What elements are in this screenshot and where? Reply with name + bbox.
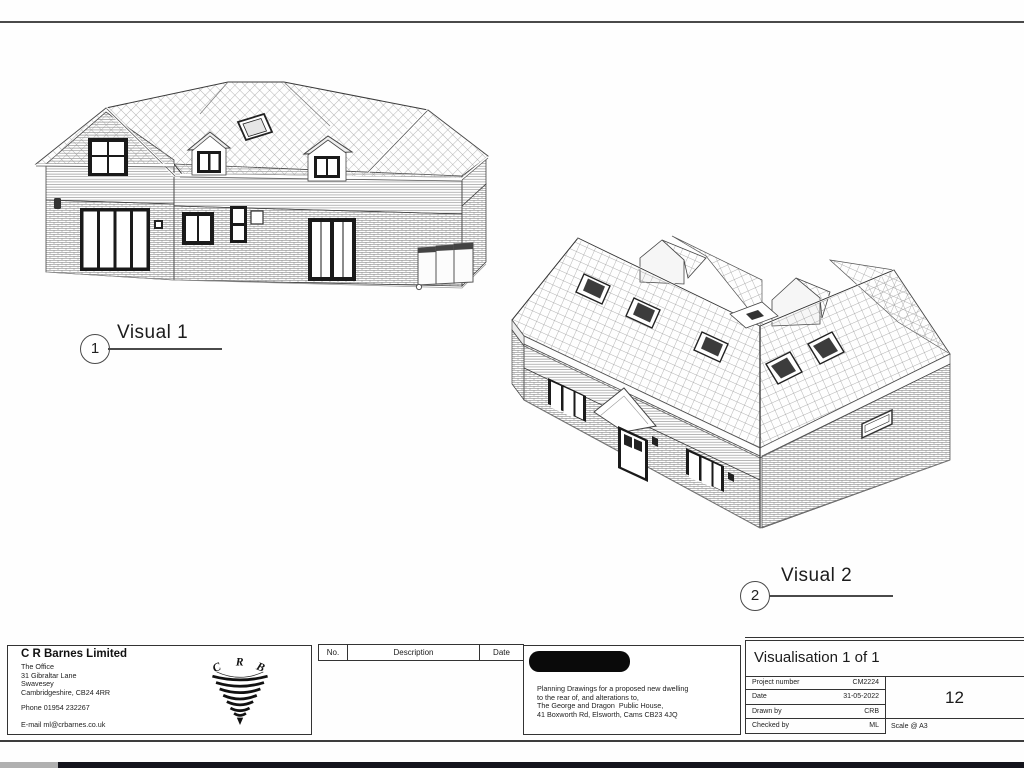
figure-1-number: 1 xyxy=(91,340,99,357)
svg-text:B: B xyxy=(254,659,267,674)
house1-wheelie-bins xyxy=(416,243,473,290)
figure-1-leader-line xyxy=(108,348,222,350)
field-value: CRB xyxy=(864,708,879,715)
company-address-line-4: Cambridgeshire, CB24 4RR xyxy=(21,688,110,697)
svg-text:C: C xyxy=(211,660,223,675)
field-value: 31-05-2022 xyxy=(843,693,879,700)
redacted-text-bar xyxy=(529,651,630,672)
revision-col-description: Description xyxy=(347,644,480,661)
sheet-title: Visualisation 1 of 1 xyxy=(754,649,880,666)
drawing-sheet: 1 Visual 1 xyxy=(0,0,1024,768)
project-box: Planning Drawings for a proposed new dwe… xyxy=(523,645,741,735)
sheet-title-box: Visualisation 1 of 1 xyxy=(745,640,1024,677)
company-box: C R Barnes Limited The Office 31 Gibralt… xyxy=(7,645,312,735)
revision-col-date: Date xyxy=(479,644,524,661)
field-row-project-number: Project number CM2224 xyxy=(746,676,886,690)
house1-bifold-doors xyxy=(80,208,150,271)
figure-2-title: Visual 2 xyxy=(781,565,852,587)
company-phone: Phone 01954 232267 xyxy=(21,703,90,712)
crb-logo-icon: C R B xyxy=(208,655,272,725)
sheet-scale: Scale @ A3 xyxy=(885,719,1024,734)
svg-text:R: R xyxy=(235,656,244,669)
figure-2-number-bubble: 2 xyxy=(740,581,770,611)
field-value: CM2224 xyxy=(853,679,879,686)
visual-2-drawing xyxy=(500,226,982,538)
house1-french-doors xyxy=(308,218,356,281)
project-description-line-4: 41 Boxworth Rd, Elsworth, Cams CB23 4JQ xyxy=(537,710,678,719)
field-row-checked-by: Checked by ML xyxy=(746,719,886,733)
house1-gable-window xyxy=(88,138,128,176)
sheet-number: 12 xyxy=(885,676,1024,719)
figure-1-number-bubble: 1 xyxy=(80,334,110,364)
field-label: Project number xyxy=(752,679,799,686)
field-label: Checked by xyxy=(752,722,789,729)
figure-2-number: 2 xyxy=(751,587,759,604)
page-edge-left xyxy=(0,762,58,768)
figure-2-leader-line xyxy=(769,595,893,597)
sheet-top-border xyxy=(0,21,1024,23)
company-name: C R Barnes Limited xyxy=(21,648,127,660)
sheet-block-top-line xyxy=(745,637,1024,638)
field-label: Drawn by xyxy=(752,708,782,715)
field-row-date: Date 31-05-2022 xyxy=(746,690,886,704)
revision-col-no: No. xyxy=(318,644,348,661)
field-value: ML xyxy=(869,722,879,729)
sheet-bottom-border xyxy=(0,740,1024,742)
company-email: E-mail ml@crbarnes.co.uk xyxy=(21,720,105,729)
visual-1-drawing xyxy=(32,80,494,302)
field-label: Date xyxy=(752,693,767,700)
field-row-drawn-by: Drawn by CRB xyxy=(746,705,886,719)
page-edge-bar xyxy=(58,762,1024,768)
figure-1-title: Visual 1 xyxy=(117,322,188,344)
